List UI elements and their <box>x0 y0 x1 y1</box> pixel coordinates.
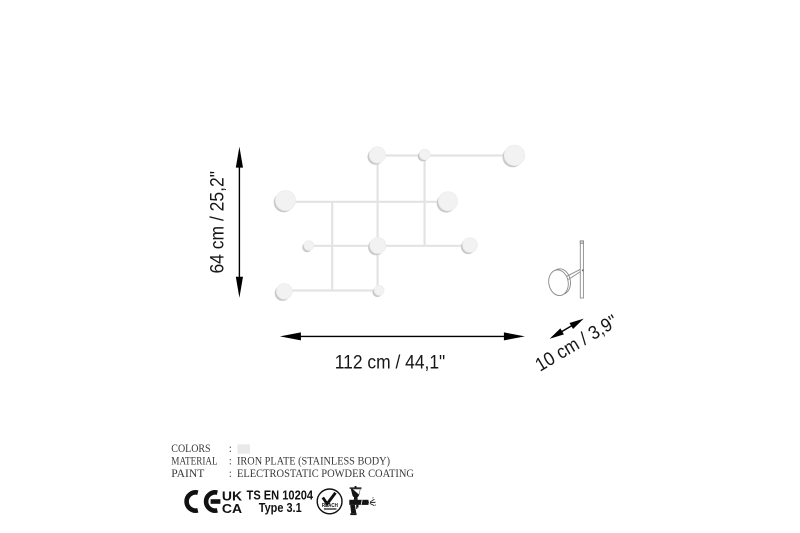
svg-text:MATERIAL: MATERIAL <box>171 456 217 468</box>
svg-text:PAINT: PAINT <box>171 468 204 480</box>
svg-text::: : <box>229 443 232 455</box>
svg-text:COLORS: COLORS <box>171 443 210 455</box>
svg-text:ELECTROSTATIC POWDER COATING: ELECTROSTATIC POWDER COATING <box>237 468 414 480</box>
svg-text:Type 3.1: Type 3.1 <box>259 500 302 515</box>
svg-text:CA: CA <box>222 501 243 516</box>
svg-text:112 cm / 44,1": 112 cm / 44,1" <box>335 352 446 373</box>
svg-text:REACH: REACH <box>322 503 338 509</box>
svg-text:64 cm / 25,2": 64 cm / 25,2" <box>207 171 228 273</box>
svg-text:IRON PLATE (STAINLESS BODY): IRON PLATE (STAINLESS BODY) <box>237 456 390 468</box>
svg-text::: : <box>229 468 232 480</box>
svg-text::: : <box>229 456 232 468</box>
